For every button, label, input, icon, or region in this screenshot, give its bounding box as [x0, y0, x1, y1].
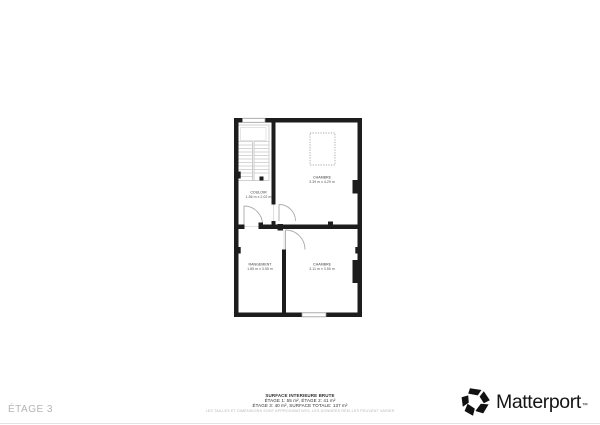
floor-label: ÉTAGE 3 — [8, 404, 53, 415]
stair-outline — [238, 125, 270, 181]
window-top — [243, 118, 266, 122]
door-arc — [279, 205, 296, 222]
room-name-chambre-lower: CHAMBRE — [313, 263, 332, 267]
wall-stub-right-lower — [355, 247, 357, 254]
wall-rangement — [282, 250, 286, 318]
wall-couloir-upper — [272, 118, 276, 205]
room-dims-couloir: 1.56 m x 2.02 m — [246, 195, 272, 199]
bottom-divider-line — [0, 423, 600, 424]
room-dims-rangement: 1.85 m x 3.55 m — [247, 267, 273, 271]
matterport-wordmark: Matterport™ — [496, 387, 587, 417]
stair-void-dotted-outline — [310, 133, 335, 165]
wall-stub-divider-door — [259, 223, 264, 230]
wall-bottom — [234, 313, 362, 318]
room-name-chambre-upper: CHAMBRE — [313, 176, 332, 180]
room-name-rangement: RANGEMENT — [249, 263, 273, 267]
door-lower-chambre — [286, 230, 306, 250]
window-bottom — [302, 313, 326, 317]
stair-newel-post — [260, 177, 264, 181]
door-arc — [244, 206, 263, 225]
wall-stub-divider-east — [328, 222, 333, 226]
trademark-mark: ™ — [582, 403, 588, 409]
room-name-couloir: COULOIR — [250, 191, 267, 195]
wall-left — [234, 118, 239, 317]
door-upper-chambre — [279, 205, 296, 222]
wall-divider-west — [234, 225, 245, 230]
summary-disclaimer: LES TAILLES ET DIMENSIONS SONT APPROXIMA… — [100, 409, 500, 414]
room-dims-chambre-lower: 3.11 m x 3.55 m — [309, 267, 335, 271]
page: COULOIR 1.56 m x 2.02 m CHAMBRE 3.39 m x… — [0, 0, 600, 425]
staircase — [238, 125, 270, 181]
wall-right — [358, 118, 363, 317]
door-arc — [286, 230, 306, 250]
wall-stub-left-stairs — [239, 172, 241, 179]
wall-divider-east — [263, 225, 363, 230]
floor-plan: COULOIR 1.56 m x 2.02 m CHAMBRE 3.39 m x… — [0, 0, 600, 425]
wall-stub-junction — [278, 224, 284, 231]
wall-stub-left-lower — [239, 247, 241, 254]
door-couloir-entry — [244, 206, 263, 225]
room-dims-chambre-upper: 3.39 m x 4.29 m — [309, 180, 335, 184]
summary-line-2: ÉTAGE 3: 40 m², SURFACE TOTALE: 137 m² — [100, 403, 500, 408]
chimney-upper — [353, 180, 359, 194]
chimney-lower — [353, 260, 359, 283]
surface-summary: SURFACE INTERIEURE BRUTE ÉTAGE 1: 55 m²,… — [100, 393, 500, 414]
matterport-logo: Matterport™ — [461, 387, 587, 417]
wall-couloir-lower — [272, 221, 276, 229]
matterport-pinwheel-icon — [461, 387, 491, 417]
